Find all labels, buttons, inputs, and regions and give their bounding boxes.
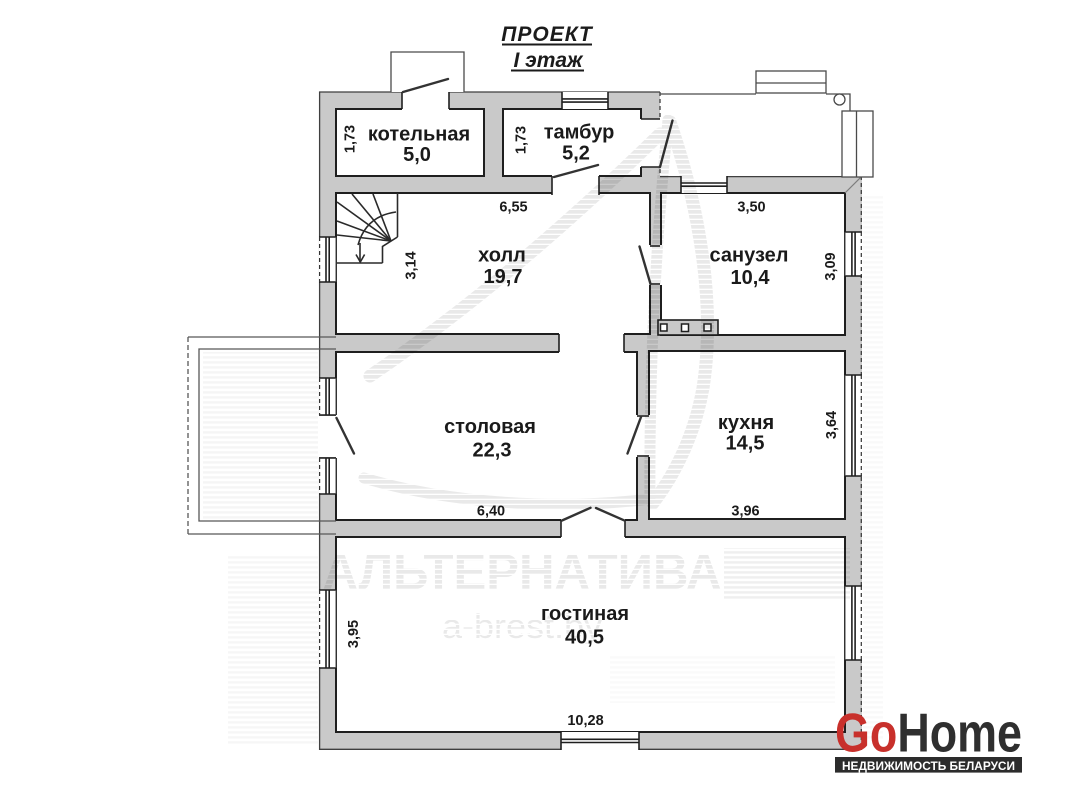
svg-text:22,3: 22,3 — [473, 440, 512, 462]
svg-text:3,95: 3,95 — [346, 620, 362, 648]
svg-text:тамбур: тамбур — [544, 122, 615, 144]
svg-text:a-brest.by: a-brest.by — [442, 608, 602, 646]
svg-text:10,28: 10,28 — [567, 713, 603, 729]
svg-text:АЛЬТЕРНАТИВА: АЛЬТЕРНАТИВА — [323, 544, 722, 600]
svg-text:6,55: 6,55 — [499, 200, 527, 216]
svg-text:14,5: 14,5 — [726, 433, 765, 455]
svg-text:1,73: 1,73 — [514, 126, 530, 154]
svg-text:санузел: санузел — [710, 244, 789, 266]
svg-text:ПРОЕКТ: ПРОЕКТ — [501, 23, 594, 46]
svg-text:кухня: кухня — [718, 412, 774, 434]
svg-text:3,14: 3,14 — [404, 251, 420, 279]
svg-text:котельная: котельная — [368, 124, 470, 146]
svg-text:I этаж: I этаж — [513, 49, 584, 72]
svg-text:10,4: 10,4 — [731, 267, 771, 289]
svg-text:3,50: 3,50 — [737, 200, 765, 216]
svg-text:НЕДВИЖИМОСТЬ БЕЛАРУСИ: НЕДВИЖИМОСТЬ БЕЛАРУСИ — [842, 761, 1015, 773]
svg-text:столовая: столовая — [444, 416, 536, 438]
svg-text:5,2: 5,2 — [562, 143, 590, 165]
svg-text:5,0: 5,0 — [403, 144, 431, 166]
svg-text:GoHome: GoHome — [835, 702, 1022, 764]
svg-text:3,64: 3,64 — [824, 411, 840, 439]
svg-text:1,73: 1,73 — [343, 125, 359, 153]
svg-text:3,09: 3,09 — [823, 252, 839, 280]
svg-text:3,96: 3,96 — [731, 504, 759, 520]
